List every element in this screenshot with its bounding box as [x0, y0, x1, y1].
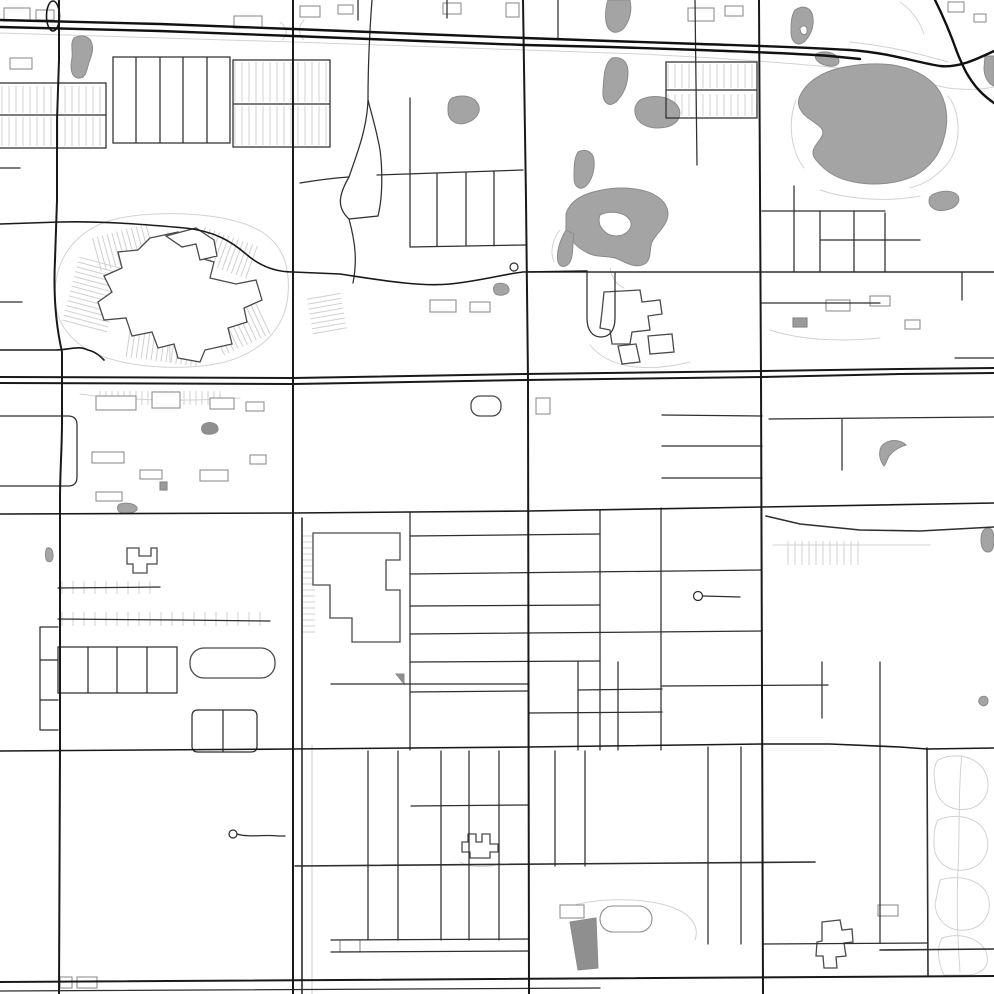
parcel-col-left — [40, 627, 58, 730]
building-small — [725, 6, 743, 16]
lake-south-path — [820, 190, 920, 199]
building-small — [36, 10, 54, 20]
retail-aisle-ne — [770, 330, 880, 340]
parcel-grid-nw — [113, 57, 230, 143]
mall-lot-east-annex — [307, 293, 347, 333]
parcel-grid-center-n — [377, 98, 525, 247]
avenue-v4 — [759, 0, 763, 994]
pond-track-wedge — [570, 918, 598, 970]
superblock-curve-main — [340, 0, 372, 283]
mall-building — [98, 232, 262, 362]
pond-retail-small — [202, 423, 219, 435]
industrial-lots-n-row1 — [235, 62, 326, 102]
street-map-canvas[interactable] — [0, 0, 994, 994]
golf-cell-4 — [938, 936, 987, 975]
stadium-parcel — [190, 648, 275, 678]
building-strip-mall — [210, 398, 234, 409]
building-strip-mall — [246, 402, 264, 411]
building-small — [470, 302, 490, 312]
parking-hatches — [2, 62, 858, 632]
arterial-h2-north — [0, 368, 994, 378]
building-small — [948, 2, 964, 12]
pond-top-right-holed — [791, 7, 813, 44]
school-wing-building — [618, 344, 640, 364]
lollipop-stem-2 — [237, 834, 285, 836]
parcel-pair-rounded — [192, 710, 257, 752]
building-dark-small — [793, 318, 807, 327]
pond-tiny-triangle — [396, 674, 404, 684]
lollipop-street-1 — [694, 592, 703, 601]
school-south-building — [462, 834, 498, 858]
pond-d-donut — [566, 188, 668, 266]
map-viewport[interactable] — [0, 0, 994, 994]
building-strip-mall — [96, 492, 122, 501]
industrial-lots-nw-row2 — [2, 117, 100, 146]
pond-west-sliver — [46, 548, 54, 562]
pond-c — [574, 150, 594, 188]
building-small — [536, 398, 550, 414]
building-small — [340, 940, 360, 952]
building-rounded — [471, 396, 501, 416]
running-track — [600, 906, 652, 932]
building-strip-mall — [140, 470, 162, 479]
building-small — [300, 6, 320, 17]
pond-right-edge-top — [984, 56, 994, 86]
pond-top-edge — [606, 0, 631, 32]
street-east-928 — [927, 748, 928, 975]
building-small — [870, 296, 890, 306]
industrial-lots-ne-row2 — [668, 94, 752, 116]
school-gym-building — [648, 334, 674, 354]
street-950-right — [880, 949, 994, 950]
golf-path — [957, 755, 962, 972]
golf-cell-2 — [934, 816, 988, 870]
mall-west-approach — [0, 348, 104, 360]
resi-grid-horizontals — [331, 534, 828, 713]
building-small — [10, 58, 32, 69]
pond-d-arm-sw — [557, 230, 574, 267]
pond-center-small — [494, 283, 510, 295]
pond-oval-right-edge — [981, 528, 994, 552]
building-small — [905, 320, 920, 329]
building-strip-mall — [92, 452, 124, 463]
superblock-curve-west — [300, 177, 349, 183]
f-shaped-building — [127, 548, 157, 573]
lake-main — [798, 64, 946, 184]
school-apron-path — [590, 345, 690, 368]
motorway-westbound — [0, 27, 860, 59]
arterial-h3 — [0, 503, 994, 514]
building-small — [338, 5, 353, 14]
pond-b — [635, 97, 680, 128]
building-small — [430, 300, 456, 312]
building-small — [826, 300, 850, 311]
industrial-lots-n-row2 — [235, 106, 326, 145]
building-strip-mall — [200, 470, 228, 481]
lollipop-stem-1 — [703, 596, 740, 597]
building-small — [506, 3, 519, 17]
industrial-lots-ne-row1 — [668, 64, 752, 88]
street-north-695 — [695, 0, 697, 165]
avenue-v3 — [523, 0, 529, 994]
street-h3b-branch — [766, 516, 994, 531]
parcel-row-midwest — [58, 647, 177, 693]
culdesac-bulb-center — [510, 263, 518, 271]
pond-se-of-lake — [929, 191, 959, 210]
water — [46, 0, 994, 970]
ne-grid-horizontals — [762, 211, 994, 358]
east-mid-streets — [662, 415, 994, 478]
building-strip-mall — [250, 455, 266, 464]
pond-crescent-east — [880, 441, 906, 466]
arterial-h4 — [0, 744, 994, 751]
pond-tiny-right — [979, 696, 988, 706]
building-dark-small — [160, 482, 167, 490]
rounded-parcel-left-edge — [0, 416, 77, 486]
lollipop-street-2 — [229, 830, 237, 838]
industrial-lots-nw-row1 — [2, 86, 100, 113]
avenue-v1-west — [54, 0, 62, 994]
building-strip-mall — [152, 392, 180, 408]
building-strip-mall — [96, 396, 136, 410]
corner-ne-path — [900, 2, 924, 34]
bigbox-store — [313, 533, 400, 642]
pond-a — [603, 58, 628, 105]
arterial-h5 — [0, 976, 994, 982]
building-small — [974, 14, 986, 22]
pond-west-small — [118, 503, 138, 513]
pond-kidney-nw — [71, 36, 92, 78]
pond-center-n — [448, 96, 479, 124]
building-small — [443, 3, 461, 14]
building-small — [878, 905, 898, 916]
building-small — [688, 8, 714, 21]
interchange-ramp-west — [280, 22, 286, 40]
industrial-border-n — [233, 60, 330, 147]
building-small — [560, 905, 584, 918]
superblock-curve-loop — [349, 100, 382, 219]
golf-cell-3 — [935, 878, 989, 931]
pond-d-outlet — [610, 268, 624, 288]
